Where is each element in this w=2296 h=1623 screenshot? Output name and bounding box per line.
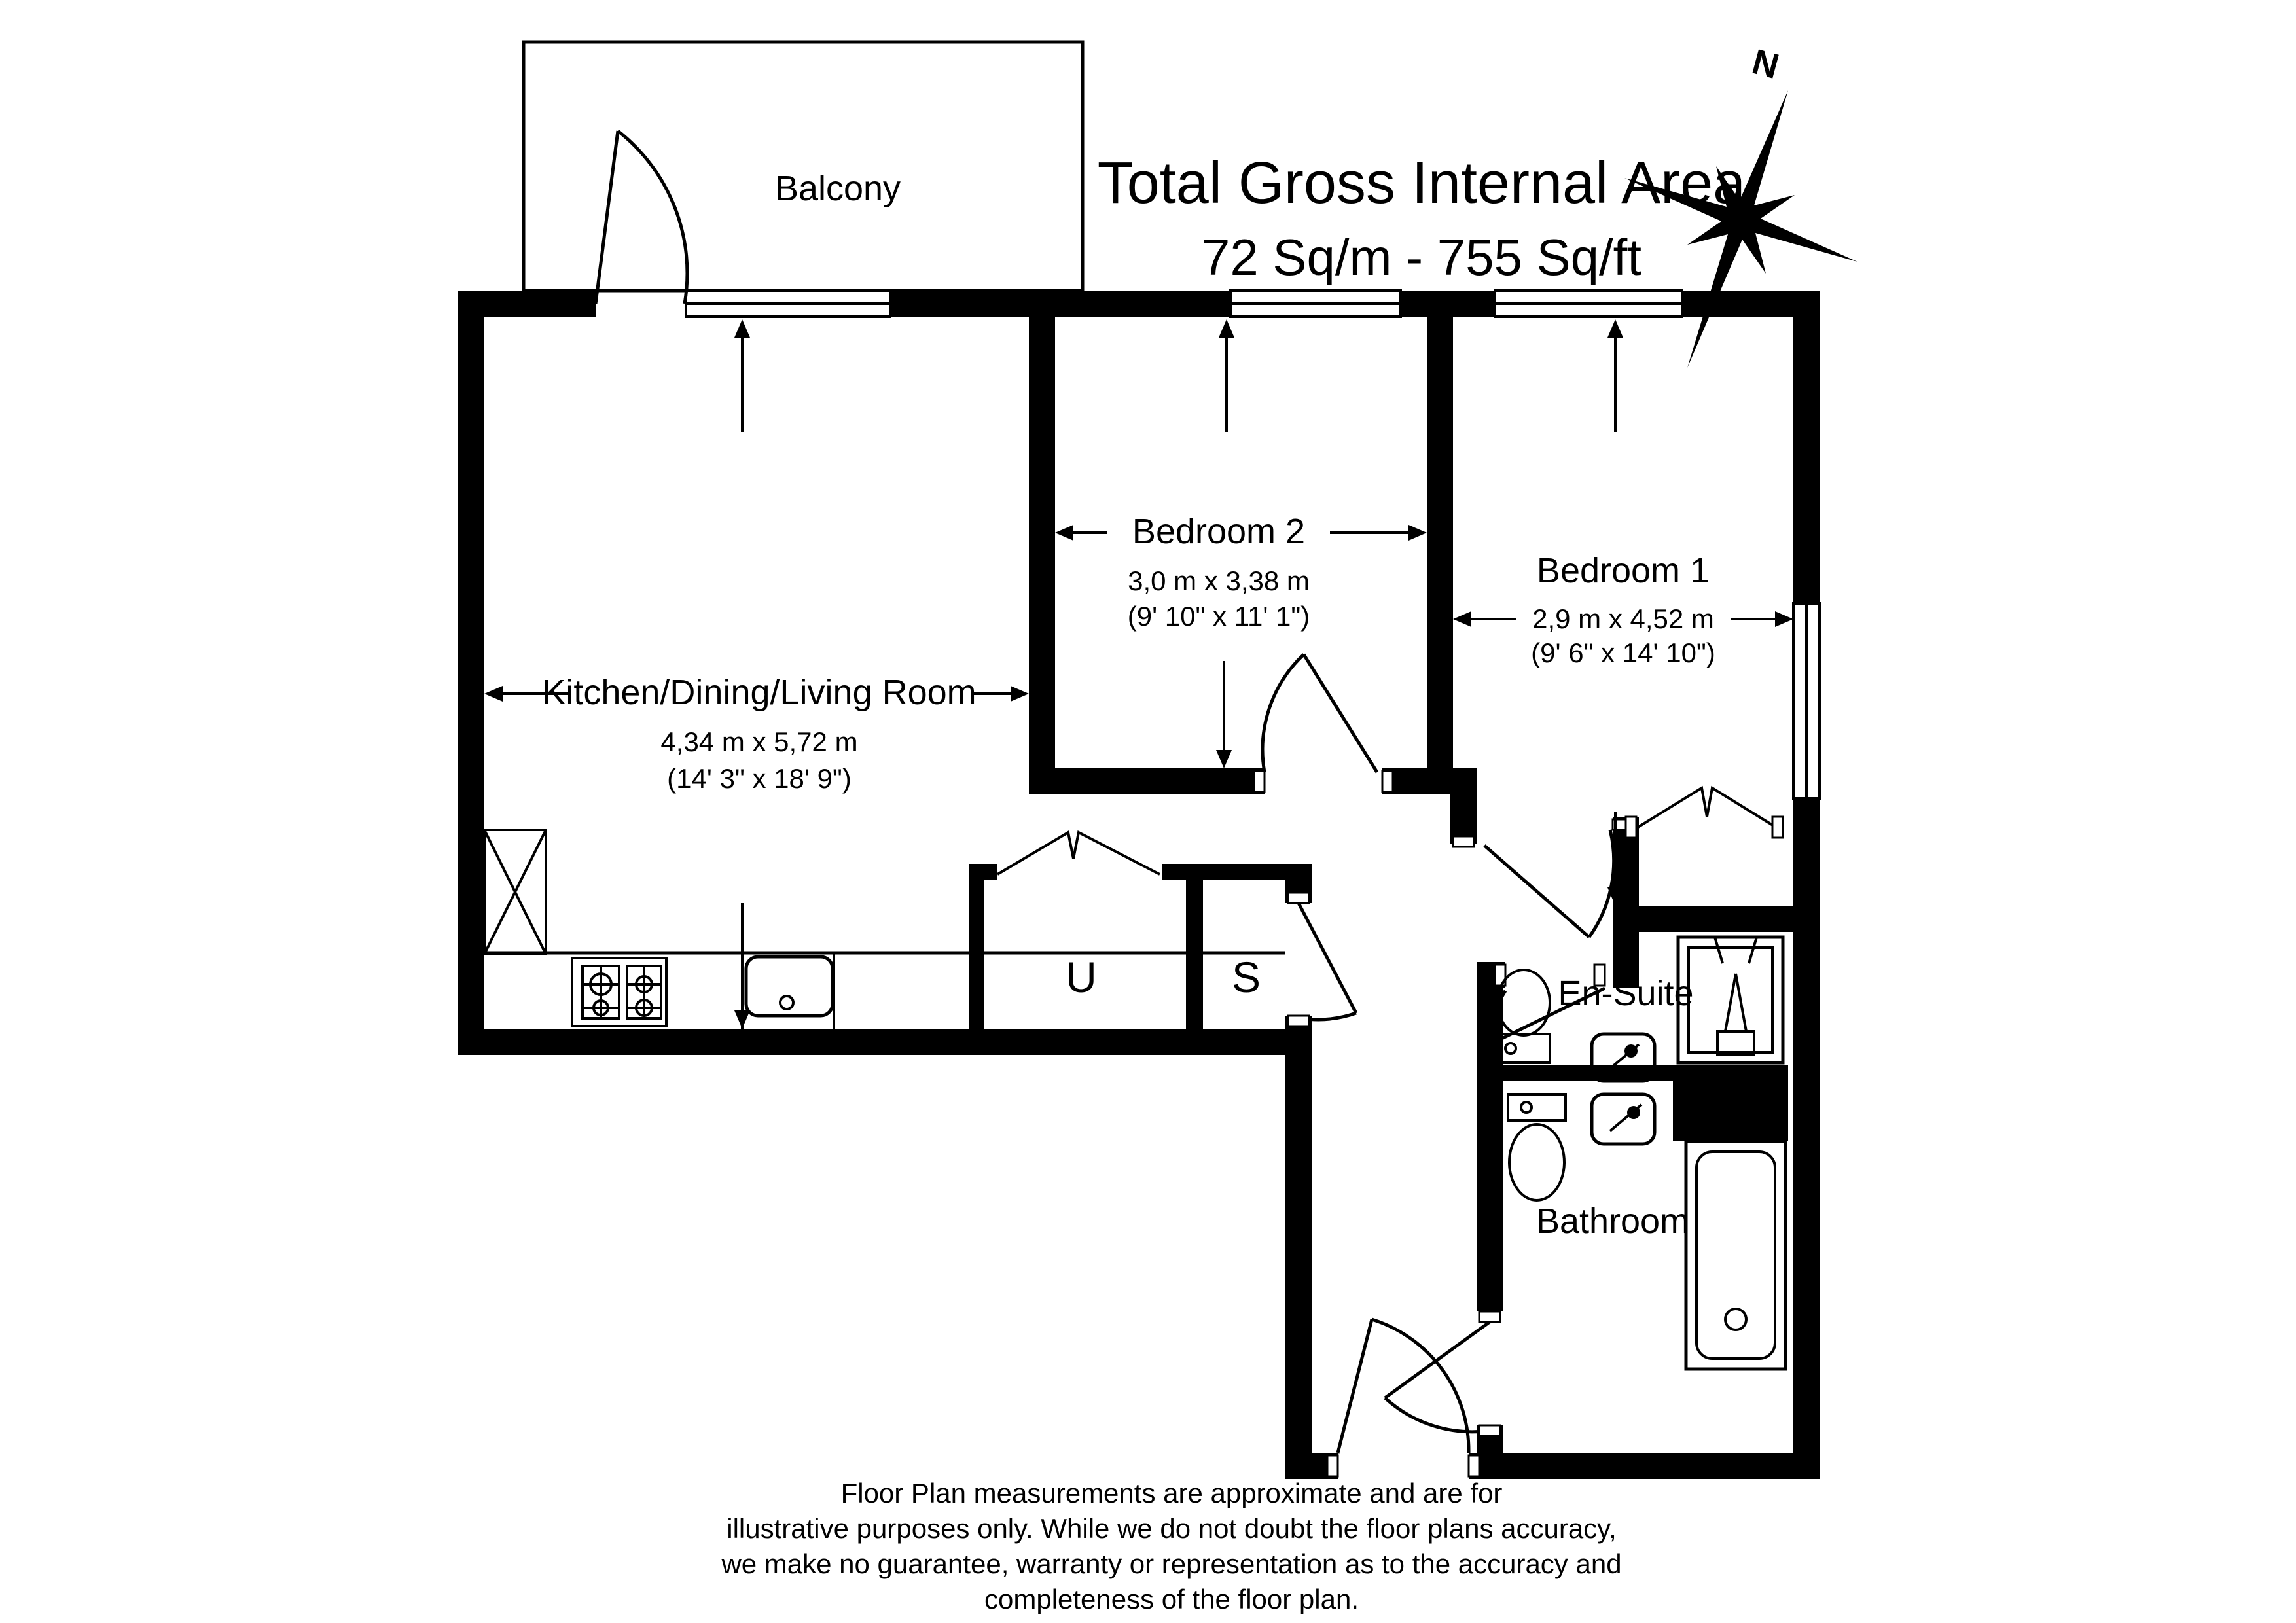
- storage-closet-door: [1299, 903, 1356, 1020]
- living-room-window: [686, 291, 890, 317]
- kitchen-sink-icon: [746, 957, 833, 1016]
- storage-closet-label: S: [1232, 953, 1261, 1001]
- balcony-door: [596, 131, 687, 304]
- interior-walls: [969, 317, 1820, 1453]
- bedroom1-imperial: (9' 6" x 14' 10"): [1531, 637, 1715, 668]
- bedroom2-metric: 3,0 m x 3,38 m: [1128, 565, 1310, 596]
- page-subtitle-area: 72 Sq/m - 755 Sq/ft: [1202, 228, 1641, 286]
- balcony-label: Balcony: [775, 169, 901, 208]
- balcony-outline: Balcony: [524, 42, 1083, 291]
- bedroom2-imperial: (9' 10" x 11' 1"): [1128, 601, 1310, 632]
- bathroom-sink-icon: [1592, 1094, 1655, 1144]
- footer-disclaimer: Floor Plan measurements are approximate …: [721, 1478, 1621, 1614]
- living-room-imperial: (14' 3" x 18' 9"): [667, 763, 852, 794]
- kitchen-unit-icon: [484, 830, 546, 954]
- kitchen-fixtures: [484, 830, 1285, 1029]
- living-room-metric: 4,34 m x 5,72 m: [660, 726, 857, 757]
- bedroom2-name: Bedroom 2: [1132, 512, 1305, 551]
- title-block: Total Gross Internal Area 72 Sq/m - 755 …: [1098, 151, 1746, 286]
- duct-block: [1673, 1065, 1788, 1141]
- floor-plan: Total Gross Internal Area 72 Sq/m - 755 …: [0, 0, 2296, 1623]
- hob-icon: [572, 958, 666, 1026]
- bedroom1-wardrobe-bifold-door: [1634, 788, 1780, 830]
- utility-closet-label: U: [1066, 953, 1097, 1001]
- bathroom-toilet-icon: [1508, 1094, 1566, 1200]
- footer-line-2: illustrative purposes only. While we do …: [726, 1513, 1616, 1544]
- bathtub-icon: [1686, 1141, 1785, 1369]
- compass-north-label: N: [1748, 42, 1783, 86]
- living-room-name: Kitchen/Dining/Living Room: [542, 673, 976, 712]
- room-label-bedroom1: Bedroom 1 2,9 m x 4,52 m (9' 6" x 14' 10…: [1531, 551, 1715, 668]
- room-label-bedroom2: Bedroom 2 3,0 m x 3,38 m (9' 10" x 11' 1…: [1128, 512, 1310, 632]
- bedroom1-metric: 2,9 m x 4,52 m: [1532, 603, 1714, 634]
- bathroom-door: [1385, 1322, 1490, 1432]
- bedroom2-window: [1230, 291, 1401, 317]
- bedroom1-top-window: [1495, 291, 1682, 317]
- ensuite-shower-icon: [1678, 937, 1783, 1063]
- bathroom-label: Bathroom: [1536, 1202, 1689, 1241]
- footer-line-4: completeness of the floor plan.: [984, 1584, 1359, 1614]
- bedroom1-side-window: [1793, 603, 1820, 798]
- utility-bifold-door: [997, 832, 1160, 874]
- bedroom1-door: [1484, 830, 1614, 937]
- bedroom1-name: Bedroom 1: [1537, 551, 1710, 590]
- footer-line-3: we make no guarantee, warranty or repres…: [721, 1548, 1621, 1579]
- footer-line-1: Floor Plan measurements are approximate …: [841, 1478, 1503, 1508]
- bedroom2-door: [1263, 654, 1377, 772]
- page-title: Total Gross Internal Area: [1098, 151, 1746, 216]
- room-label-living: Kitchen/Dining/Living Room 4,34 m x 5,72…: [542, 673, 976, 794]
- ensuite-label: En-Suite: [1558, 974, 1693, 1013]
- doors: [596, 131, 1783, 1476]
